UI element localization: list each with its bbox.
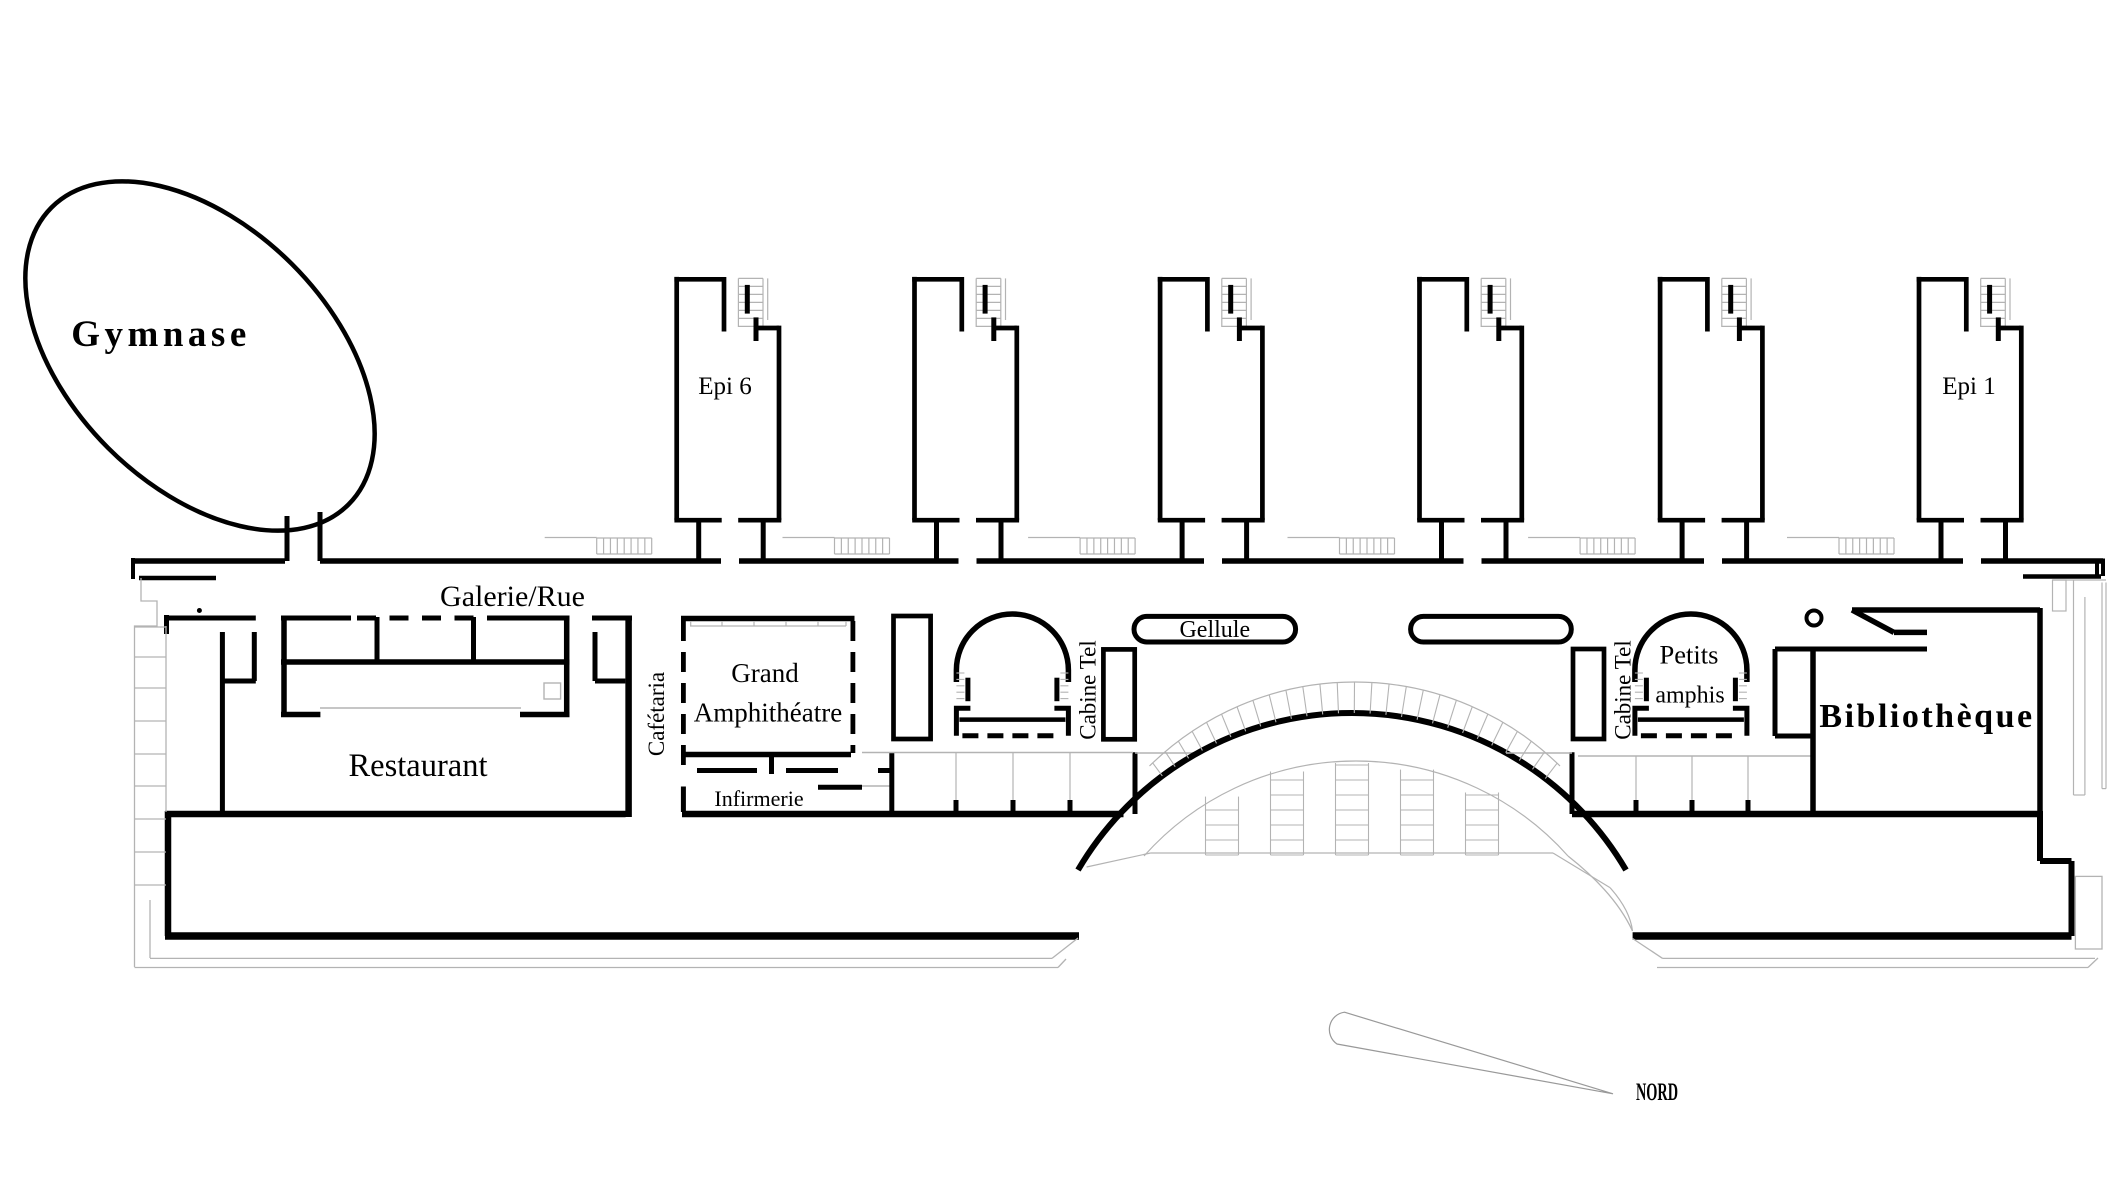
svg-text:NORD: NORD: [1636, 1079, 1678, 1106]
svg-text:Cabine Tel: Cabine Tel: [1611, 640, 1636, 740]
svg-text:Infirmerie: Infirmerie: [714, 786, 803, 811]
svg-text:Cafétaria: Cafétaria: [644, 672, 669, 756]
svg-text:amphis: amphis: [1655, 683, 1724, 709]
svg-text:Epi 1: Epi 1: [1942, 373, 1995, 400]
svg-text:Amphithéatre: Amphithéatre: [694, 698, 842, 728]
svg-text:Gellule: Gellule: [1179, 617, 1250, 643]
svg-text:Galerie/Rue: Galerie/Rue: [440, 580, 585, 613]
svg-text:Gymnase: Gymnase: [71, 314, 251, 355]
svg-text:Restaurant: Restaurant: [349, 748, 488, 784]
svg-text:Cabine Tel: Cabine Tel: [1076, 640, 1101, 740]
svg-text:Petits: Petits: [1660, 640, 1719, 670]
svg-text:Bibliothèque: Bibliothèque: [1819, 698, 2034, 735]
svg-text:Epi 6: Epi 6: [698, 373, 751, 400]
svg-text:Grand: Grand: [731, 658, 799, 688]
